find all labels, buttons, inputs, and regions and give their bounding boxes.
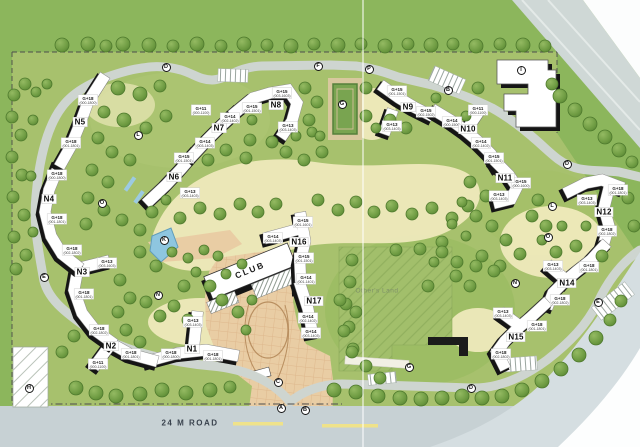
tree-icon xyxy=(102,176,114,188)
tree-icon xyxy=(112,306,124,318)
tree-icon xyxy=(167,247,177,257)
tree-icon xyxy=(160,110,172,122)
tree-icon xyxy=(232,306,244,318)
tree-icon xyxy=(334,294,346,306)
tree-icon xyxy=(338,325,350,337)
tree-icon xyxy=(303,114,315,126)
tree-icon xyxy=(252,206,264,218)
tree-icon xyxy=(598,130,612,144)
tree-icon xyxy=(241,325,251,335)
tree-icon xyxy=(178,280,190,292)
tree-icon xyxy=(371,123,381,133)
tree-icon xyxy=(237,259,247,269)
tree-icon xyxy=(350,306,362,318)
tree-icon xyxy=(604,314,616,326)
tree-icon xyxy=(20,249,32,261)
tree-icon xyxy=(142,38,156,52)
tree-icon xyxy=(204,280,216,292)
tree-icon xyxy=(182,314,194,326)
tree-icon xyxy=(146,206,158,218)
tree-icon xyxy=(183,253,193,263)
tree-icon xyxy=(332,204,344,216)
tree-icon xyxy=(349,385,363,399)
tree-icon xyxy=(546,78,558,90)
tree-icon xyxy=(55,38,69,52)
tree-icon xyxy=(247,295,257,305)
tree-icon xyxy=(42,79,52,89)
tree-icon xyxy=(202,154,214,166)
tree-icon xyxy=(266,136,278,148)
tree-icon xyxy=(400,122,412,134)
tree-icon xyxy=(18,209,30,221)
tree-icon xyxy=(106,146,118,158)
tree-icon xyxy=(134,336,146,348)
tree-icon xyxy=(8,231,20,243)
tree-icon xyxy=(124,154,136,166)
tree-icon xyxy=(393,391,407,405)
tree-icon xyxy=(475,391,489,405)
tree-icon xyxy=(346,254,358,266)
tree-icon xyxy=(472,82,484,94)
tree-icon xyxy=(557,221,567,231)
tree-icon xyxy=(28,227,38,237)
tree-icon xyxy=(244,134,256,146)
tree-icon xyxy=(133,387,147,401)
tree-icon xyxy=(622,192,634,204)
tree-icon xyxy=(56,346,68,358)
tree-icon xyxy=(8,89,20,101)
tree-icon xyxy=(69,381,83,395)
tree-icon xyxy=(570,240,582,252)
tree-icon xyxy=(451,256,463,268)
tree-icon xyxy=(495,389,509,403)
tree-icon xyxy=(92,132,104,144)
tree-icon xyxy=(406,208,418,220)
tree-icon xyxy=(488,265,500,277)
tree-icon xyxy=(98,106,110,118)
tree-icon xyxy=(220,144,232,156)
tree-icon xyxy=(429,257,439,267)
tree-icon xyxy=(133,87,147,101)
tree-icon xyxy=(457,197,467,207)
tree-icon xyxy=(109,389,123,403)
tree-icon xyxy=(378,39,392,53)
tree-icon xyxy=(10,263,22,275)
tree-icon xyxy=(626,156,638,168)
tree-icon xyxy=(612,143,626,157)
tree-icon xyxy=(308,38,320,50)
tree-icon xyxy=(213,251,223,261)
tree-icon xyxy=(384,114,396,126)
tree-icon xyxy=(535,374,549,388)
tree-icon xyxy=(532,194,544,206)
tree-icon xyxy=(537,235,547,245)
tree-icon xyxy=(572,348,586,362)
site-plan-drawing xyxy=(0,0,640,447)
sports-court xyxy=(328,78,362,140)
tree-icon xyxy=(355,38,367,50)
tree-icon xyxy=(140,122,152,134)
tree-icon xyxy=(583,117,597,131)
tree-icon xyxy=(581,221,591,231)
tree-icon xyxy=(6,151,18,163)
tree-icon xyxy=(480,190,492,202)
tree-icon xyxy=(247,115,257,125)
tree-icon xyxy=(221,269,231,279)
tree-icon xyxy=(19,78,31,90)
tree-icon xyxy=(550,246,562,258)
tree-icon xyxy=(447,38,459,50)
tree-icon xyxy=(161,195,171,205)
tree-icon xyxy=(299,82,311,94)
tree-icon xyxy=(284,39,298,53)
tree-icon xyxy=(117,113,131,127)
tree-icon xyxy=(553,89,567,103)
tree-icon xyxy=(327,383,341,397)
tree-icon xyxy=(450,270,462,282)
tree-icon xyxy=(402,38,414,50)
tree-icon xyxy=(311,96,323,108)
tree-icon xyxy=(80,218,92,230)
tree-icon xyxy=(26,171,36,181)
lane-marking xyxy=(233,422,283,426)
tree-icon xyxy=(435,391,449,405)
tree-icon xyxy=(514,248,526,260)
tree-icon xyxy=(331,38,345,52)
tree-icon xyxy=(486,220,498,232)
tree-icon xyxy=(346,346,358,358)
tree-icon xyxy=(500,234,512,246)
tree-icon xyxy=(455,389,469,403)
tree-icon xyxy=(464,280,476,292)
tree-icon xyxy=(168,300,180,312)
tree-icon xyxy=(28,115,38,125)
tree-icon xyxy=(154,80,166,92)
tree-icon xyxy=(98,204,110,216)
tree-icon xyxy=(424,38,438,52)
tree-icon xyxy=(154,310,166,322)
tree-icon xyxy=(111,81,125,95)
tree-icon xyxy=(436,246,448,258)
tree-icon xyxy=(7,191,19,203)
tree-icon xyxy=(134,246,146,258)
tree-icon xyxy=(31,87,41,97)
tree-icon xyxy=(526,210,538,222)
tree-icon xyxy=(240,152,252,164)
tree-icon xyxy=(179,386,193,400)
tree-icon xyxy=(114,274,126,286)
tree-icon xyxy=(371,389,385,403)
tree-icon xyxy=(120,324,132,336)
tree-icon xyxy=(350,196,362,208)
tree-icon xyxy=(461,111,471,121)
tree-icon xyxy=(280,146,292,158)
tree-icon xyxy=(386,200,398,212)
tree-icon xyxy=(155,383,169,397)
tree-icon xyxy=(414,243,426,255)
tree-icon xyxy=(554,362,568,376)
tree-icon xyxy=(237,37,251,51)
tree-icon xyxy=(124,292,136,304)
tree-icon xyxy=(174,212,186,224)
tree-icon xyxy=(234,198,246,210)
tree-icon xyxy=(390,244,402,256)
tree-icon xyxy=(224,381,236,393)
tree-icon xyxy=(116,37,130,51)
tree-icon xyxy=(568,103,582,117)
tree-icon xyxy=(291,131,301,141)
tree-icon xyxy=(140,296,152,308)
tree-icon xyxy=(68,330,80,342)
scan-fold-seam xyxy=(362,0,364,447)
reserved-plot-h xyxy=(13,347,48,407)
tree-icon xyxy=(516,38,530,52)
tree-icon xyxy=(214,208,226,220)
tree-icon xyxy=(298,154,310,166)
tree-icon xyxy=(469,39,483,53)
lane-marking xyxy=(322,424,378,428)
tree-icon xyxy=(461,231,471,241)
tree-icon xyxy=(426,202,438,214)
tree-icon xyxy=(194,202,206,214)
tree-icon xyxy=(199,245,209,255)
tree-icon xyxy=(374,372,386,384)
tree-icon xyxy=(315,131,325,141)
tree-icon xyxy=(431,93,441,103)
tree-icon xyxy=(6,111,18,123)
tree-icon xyxy=(312,194,324,206)
tree-icon xyxy=(191,267,201,277)
tree-icon xyxy=(190,37,204,51)
residential-site-plan: CLUB Other's Land 24 M ROAD G+13(003-140… xyxy=(0,0,640,447)
tree-icon xyxy=(116,214,128,226)
tree-icon xyxy=(150,260,162,272)
tree-icon xyxy=(515,383,529,397)
tree-icon xyxy=(344,276,356,288)
tree-icon xyxy=(86,164,98,176)
tree-icon xyxy=(539,40,551,52)
tree-icon xyxy=(89,386,103,400)
tree-icon xyxy=(589,331,603,345)
tree-icon xyxy=(596,250,608,262)
tree-icon xyxy=(82,192,94,204)
tree-icon xyxy=(15,129,27,141)
tree-icon xyxy=(216,294,228,306)
tree-icon xyxy=(494,38,506,50)
tree-icon xyxy=(167,40,179,52)
tree-icon xyxy=(470,210,482,222)
tree-icon xyxy=(134,224,146,236)
tree-icon xyxy=(81,37,95,51)
tree-icon xyxy=(422,280,434,292)
tree-icon xyxy=(414,392,428,406)
tree-icon xyxy=(615,295,627,307)
tree-icon xyxy=(270,198,282,210)
tree-icon xyxy=(100,40,112,52)
tree-icon xyxy=(628,220,640,232)
tree-icon xyxy=(464,176,476,188)
tree-icon xyxy=(470,260,482,272)
tree-icon xyxy=(316,146,328,158)
tree-icon xyxy=(447,219,457,229)
tree-icon xyxy=(540,220,552,232)
tree-icon xyxy=(368,206,380,218)
tree-icon xyxy=(261,39,273,51)
tree-icon xyxy=(215,40,227,52)
tree-icon xyxy=(203,383,217,397)
